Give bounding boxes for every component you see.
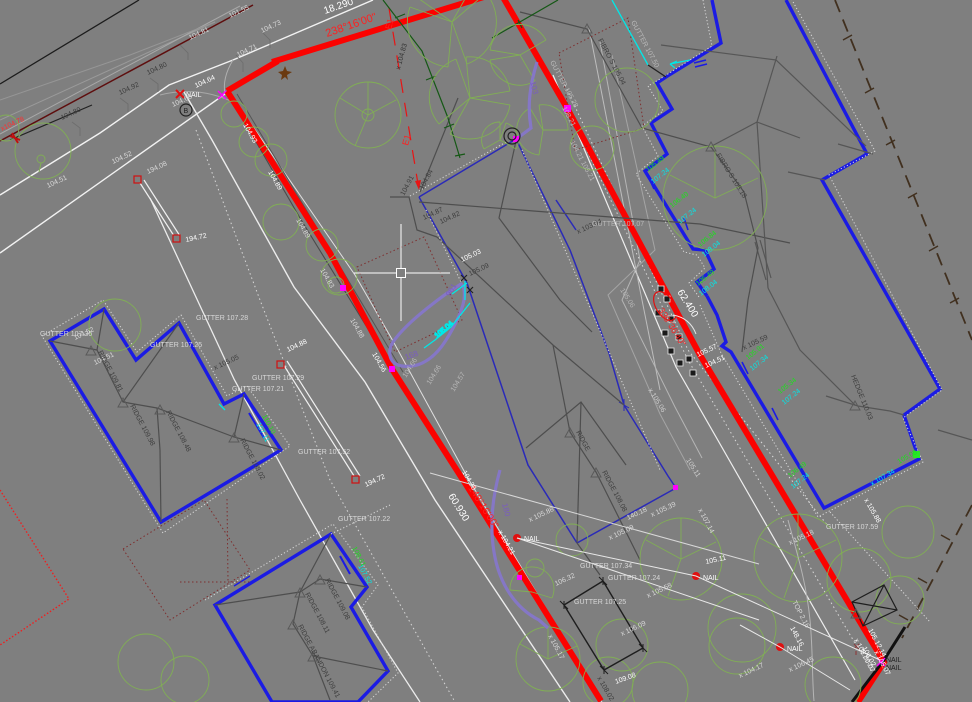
svg-text:NAIL: NAIL [524, 536, 540, 543]
svg-text:NAIL: NAIL [703, 575, 719, 582]
svg-text:GUTTER 107.34: GUTTER 107.34 [580, 563, 632, 570]
svg-text:GUTTER 107.52: GUTTER 107.52 [298, 449, 350, 456]
svg-text:B: B [184, 108, 189, 115]
svg-text:GUTTER 107.25: GUTTER 107.25 [574, 599, 626, 606]
svg-text:GUTTER 107.36: GUTTER 107.36 [40, 331, 92, 338]
svg-text:GUTTER 107.29: GUTTER 107.29 [252, 375, 304, 382]
svg-text:GUTTER 107.24: GUTTER 107.24 [608, 575, 660, 582]
svg-text:GUTTER 107.21: GUTTER 107.21 [232, 386, 284, 393]
svg-text:NAIL: NAIL [886, 657, 902, 664]
svg-text:GUTTER 107.07: GUTTER 107.07 [592, 221, 644, 228]
svg-text:GUTTER 107.22: GUTTER 107.22 [338, 516, 390, 523]
svg-text:NAIL: NAIL [787, 646, 803, 653]
svg-text:GUTTER 107.59: GUTTER 107.59 [826, 524, 878, 531]
svg-text:GUTTER 107.25: GUTTER 107.25 [150, 342, 202, 349]
svg-text:GUTTER 107.28: GUTTER 107.28 [196, 315, 248, 322]
